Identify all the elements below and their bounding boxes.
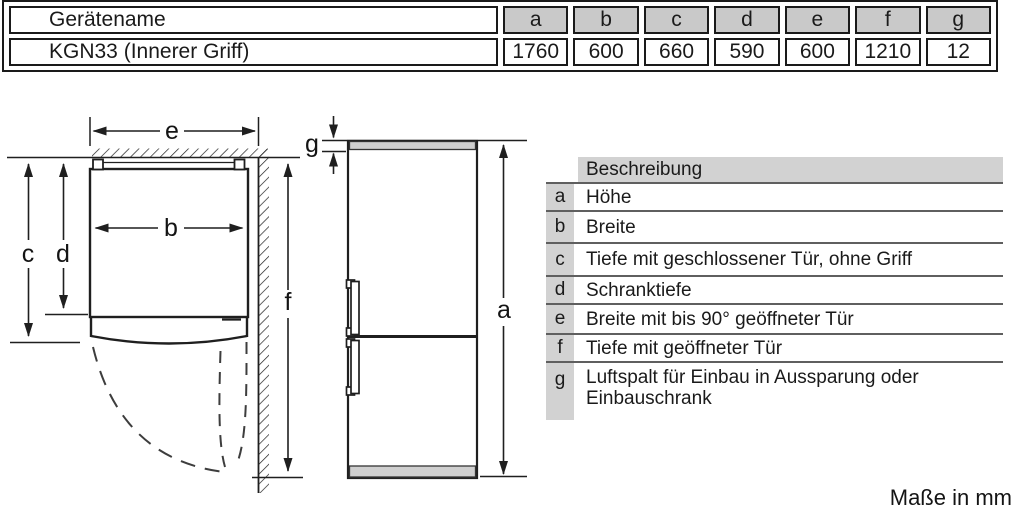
legend-key: a [546, 184, 574, 210]
legend-row-c: c Tiefe mit geschlossener Tür, ohne Grif… [546, 244, 1003, 277]
legend-row-g: g Luftspalt für Einbau in Aussparung ode… [546, 363, 1003, 420]
plinth-strip [350, 466, 476, 477]
door-swing-arc [93, 342, 247, 472]
legend-desc: Luftspalt für Einbau in Aussparung oder … [578, 363, 1003, 420]
legend-desc: Schranktiefe [578, 277, 1003, 303]
legend-header-row: Beschreibung [546, 157, 1003, 184]
legend-row-d: d Schranktiefe [546, 277, 1003, 305]
dimension-a: a [480, 145, 527, 477]
legend-desc: Tiefe mit geschlossener Tür, ohne Griff [578, 244, 1003, 275]
dimension-label-d: d [56, 240, 70, 268]
top-view-drawing [90, 160, 248, 473]
hinge-spacer-left [93, 160, 103, 170]
units-label: Maße in mm [890, 485, 1012, 511]
legend-row-a: a Höhe [546, 184, 1003, 212]
dimension-label-b: b [164, 214, 178, 242]
legend-key: c [546, 244, 574, 275]
legend-row-f: f Tiefe mit geöffneter Tür [546, 335, 1003, 363]
legend-key: d [546, 277, 574, 303]
legend-key-header-blank [546, 157, 574, 182]
legend-key: e [546, 305, 574, 333]
legend-header-label: Beschreibung [578, 157, 1003, 182]
dimension-e: e [90, 117, 259, 146]
dimension-label-e: e [165, 117, 179, 145]
legend-desc: Tiefe mit geöffneter Tür [578, 335, 1003, 361]
top-air-gap-strip [350, 142, 476, 150]
dimension-label-a: a [497, 296, 511, 324]
legend-desc: Höhe [578, 184, 1003, 210]
legend-table: Beschreibung a Höhe b Breite c Tiefe mit… [546, 157, 1003, 420]
hinge-spacer-right [235, 160, 245, 170]
dimension-g: g [305, 116, 346, 174]
legend-key: f [546, 335, 574, 361]
dimension-label-c: c [22, 240, 35, 268]
legend-row-e: e Breite mit bis 90° geöffneter Tür [546, 305, 1003, 335]
dimension-label-g: g [305, 130, 319, 158]
legend-desc: Breite [578, 212, 1003, 242]
legend-row-b: b Breite [546, 212, 1003, 244]
legend-key: b [546, 212, 574, 242]
dimension-label-f: f [285, 288, 292, 316]
dimension-d: d [45, 164, 88, 315]
legend-key: g [546, 363, 574, 420]
legend-desc: Breite mit bis 90° geöffneter Tür [578, 305, 1003, 333]
